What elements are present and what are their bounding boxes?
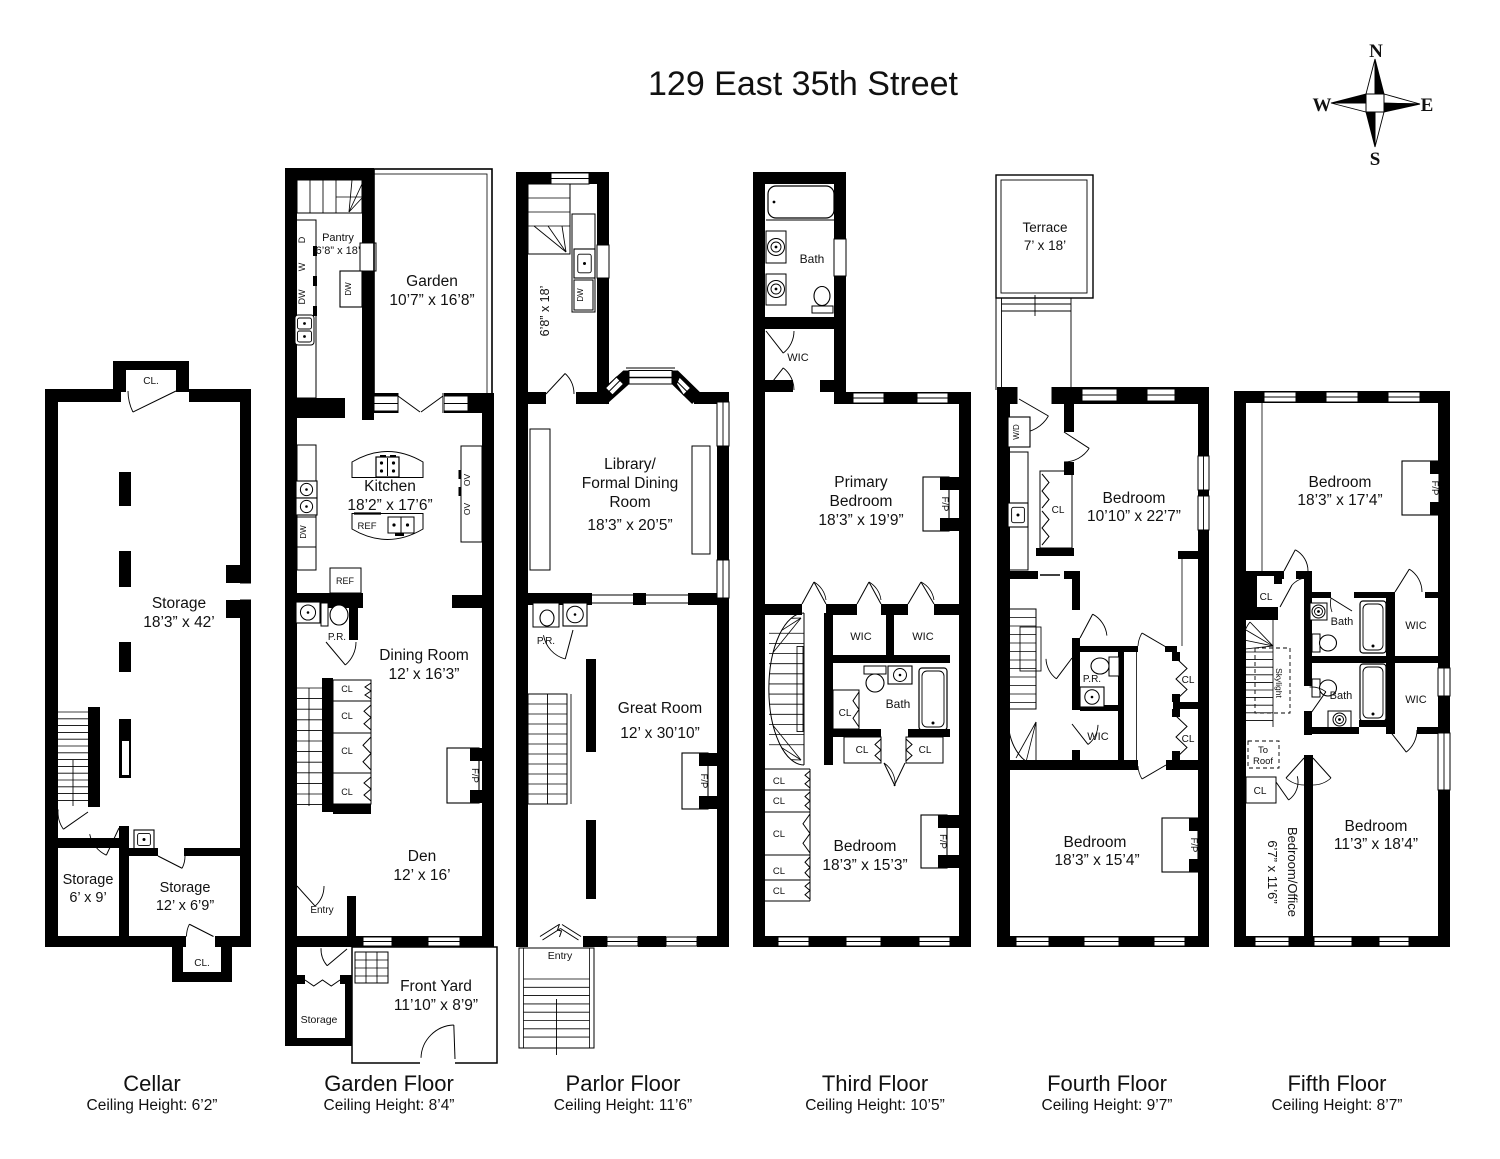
svg-text:CL: CL	[341, 746, 353, 756]
svg-text:CL: CL	[341, 711, 353, 721]
svg-text:10’10” x 22’7”: 10’10” x 22’7”	[1087, 508, 1181, 525]
svg-text:Fifth Floor: Fifth Floor	[1287, 1071, 1386, 1096]
svg-text:Ceiling Height: 8’7”: Ceiling Height: 8’7”	[1272, 1097, 1403, 1114]
svg-text:Garden: Garden	[406, 273, 458, 290]
svg-text:Front Yard: Front Yard	[400, 978, 472, 995]
svg-text:Ceiling Height: 11’6”: Ceiling Height: 11’6”	[554, 1097, 692, 1114]
svg-text:7’ x 18’: 7’ x 18’	[1024, 238, 1066, 253]
svg-text:12’ x 16’3”: 12’ x 16’3”	[389, 666, 460, 683]
svg-text:CL.: CL.	[194, 958, 210, 969]
svg-text:11’3” x 18’4”: 11’3” x 18’4”	[1334, 836, 1418, 853]
svg-text:P.R.: P.R.	[1083, 674, 1101, 685]
svg-text:CL: CL	[773, 776, 785, 787]
svg-text:CL: CL	[1254, 786, 1267, 797]
svg-text:Cellar: Cellar	[123, 1071, 180, 1096]
svg-text:Entry: Entry	[548, 950, 573, 962]
svg-text:To: To	[1258, 745, 1268, 756]
svg-text:WIC: WIC	[1087, 731, 1108, 743]
svg-text:Bath: Bath	[886, 697, 911, 711]
svg-text:N: N	[1369, 41, 1383, 62]
svg-text:Fourth Floor: Fourth Floor	[1047, 1071, 1167, 1096]
svg-text:F/P: F/P	[1429, 481, 1440, 496]
svg-text:CL: CL	[1182, 675, 1195, 686]
svg-text:DW: DW	[344, 282, 353, 296]
svg-text:Formal Dining: Formal Dining	[582, 475, 678, 492]
svg-text:Dining Room: Dining Room	[379, 647, 469, 664]
svg-text:Roof: Roof	[1253, 756, 1273, 767]
svg-text:Bedroom: Bedroom	[1309, 474, 1372, 491]
svg-text:Den: Den	[408, 848, 436, 865]
svg-text:CL: CL	[1260, 592, 1273, 603]
svg-text:CL: CL	[1052, 505, 1065, 516]
svg-text:OV: OV	[462, 474, 472, 487]
svg-text:Bath: Bath	[800, 252, 825, 266]
svg-text:F/P: F/P	[939, 497, 950, 512]
svg-text:18’3” x 17’4”: 18’3” x 17’4”	[1297, 492, 1382, 509]
svg-text:CL: CL	[341, 684, 353, 694]
svg-text:Bedroom: Bedroom	[1345, 818, 1408, 835]
svg-text:E: E	[1421, 95, 1434, 116]
svg-text:CL: CL	[773, 829, 785, 840]
svg-text:18’2” x 17’6”: 18’2” x 17’6”	[347, 497, 432, 514]
svg-text:18’3” x 15’4”: 18’3” x 15’4”	[1054, 852, 1139, 869]
svg-text:Storage: Storage	[301, 1014, 338, 1026]
svg-text:F/P: F/P	[1188, 838, 1199, 853]
svg-text:CL: CL	[773, 866, 785, 877]
svg-text:F/P: F/P	[698, 774, 709, 789]
svg-text:18’3” x 15’3”: 18’3” x 15’3”	[822, 857, 907, 874]
svg-text:WIC: WIC	[1405, 620, 1426, 632]
svg-text:Storage: Storage	[63, 872, 114, 888]
svg-text:11’10” x 8’9”: 11’10” x 8’9”	[394, 997, 478, 1014]
svg-text:6’7” x 11’6”: 6’7” x 11’6”	[1265, 840, 1280, 903]
svg-text:6’ x 9’: 6’ x 9’	[69, 890, 106, 906]
svg-text:Ceiling Height: 8’4”: Ceiling Height: 8’4”	[324, 1097, 455, 1114]
svg-text:6’8” x 18’: 6’8” x 18’	[538, 286, 552, 337]
svg-text:6’8” x 18’: 6’8” x 18’	[316, 245, 361, 257]
svg-text:Storage: Storage	[152, 595, 206, 612]
svg-text:DW: DW	[576, 288, 585, 302]
svg-text:Primary: Primary	[834, 474, 888, 491]
svg-text:12’ x 30’10”: 12’ x 30’10”	[620, 725, 700, 742]
svg-text:12’ x 16’: 12’ x 16’	[393, 867, 450, 884]
svg-text:CL.: CL.	[143, 376, 159, 387]
svg-text:Room: Room	[609, 494, 650, 511]
svg-text:CL: CL	[341, 787, 353, 797]
svg-text:Bath: Bath	[1330, 690, 1353, 702]
svg-text:10’7” x 16’8”: 10’7” x 16’8”	[389, 292, 474, 309]
svg-text:W/D: W/D	[1012, 424, 1021, 440]
svg-text:CL: CL	[919, 745, 932, 756]
svg-text:Bedroom/Office: Bedroom/Office	[1285, 827, 1300, 917]
svg-text:WIC: WIC	[1405, 694, 1426, 706]
svg-text:WIC: WIC	[787, 352, 808, 364]
svg-text:CL: CL	[856, 745, 869, 756]
svg-text:REF: REF	[336, 576, 355, 586]
svg-text:12’ x 6’9”: 12’ x 6’9”	[156, 898, 214, 914]
svg-text:P.R.: P.R.	[328, 632, 346, 643]
svg-text:Third Floor: Third Floor	[822, 1071, 928, 1096]
svg-text:Entry: Entry	[310, 905, 333, 916]
svg-text:Storage: Storage	[160, 880, 211, 896]
svg-text:REF: REF	[358, 521, 377, 532]
svg-text:OV: OV	[462, 503, 472, 516]
svg-text:CL: CL	[839, 708, 852, 719]
svg-text:F/P: F/P	[937, 834, 948, 849]
svg-text:DW: DW	[299, 525, 308, 539]
svg-text:18’3” x 42’: 18’3” x 42’	[143, 614, 215, 631]
svg-text:Library/: Library/	[604, 456, 656, 473]
svg-text:Bedroom: Bedroom	[830, 493, 893, 510]
svg-text:18’3” x 19’9”: 18’3” x 19’9”	[818, 512, 903, 529]
svg-text:Ceiling Height: 9’7”: Ceiling Height: 9’7”	[1042, 1097, 1173, 1114]
svg-text:Bedroom: Bedroom	[834, 838, 897, 855]
svg-text:CL: CL	[1182, 734, 1195, 745]
svg-text:Kitchen: Kitchen	[364, 478, 416, 495]
svg-text:Bedroom: Bedroom	[1064, 834, 1127, 851]
svg-text:WIC: WIC	[912, 631, 933, 643]
svg-text:P.R.: P.R.	[537, 636, 555, 647]
svg-text:Great Room: Great Room	[618, 700, 702, 717]
svg-text:129 East 35th Street: 129 East 35th Street	[648, 65, 959, 103]
svg-text:Ceiling Height: 6’2”: Ceiling Height: 6’2”	[87, 1097, 218, 1114]
svg-text:Bedroom: Bedroom	[1103, 490, 1166, 507]
svg-text:DW: DW	[297, 289, 307, 304]
svg-text:Bath: Bath	[1331, 616, 1354, 628]
svg-text:18’3” x 20’5”: 18’3” x 20’5”	[587, 517, 672, 534]
svg-text:WIC: WIC	[850, 631, 871, 643]
svg-text:F/P: F/P	[469, 768, 480, 783]
svg-text:Parlor Floor: Parlor Floor	[566, 1071, 681, 1096]
svg-text:CL: CL	[773, 886, 785, 897]
svg-text:S: S	[1370, 149, 1381, 170]
svg-text:Skylight: Skylight	[1274, 668, 1284, 698]
svg-text:Pantry: Pantry	[322, 232, 354, 244]
svg-text:W: W	[1313, 95, 1332, 116]
svg-text:Garden Floor: Garden Floor	[324, 1071, 454, 1096]
svg-text:Ceiling Height: 10’5”: Ceiling Height: 10’5”	[805, 1097, 945, 1114]
svg-text:W: W	[297, 262, 307, 271]
svg-text:Terrace: Terrace	[1022, 220, 1067, 235]
svg-text:D: D	[297, 236, 307, 243]
svg-text:CL: CL	[773, 796, 785, 807]
